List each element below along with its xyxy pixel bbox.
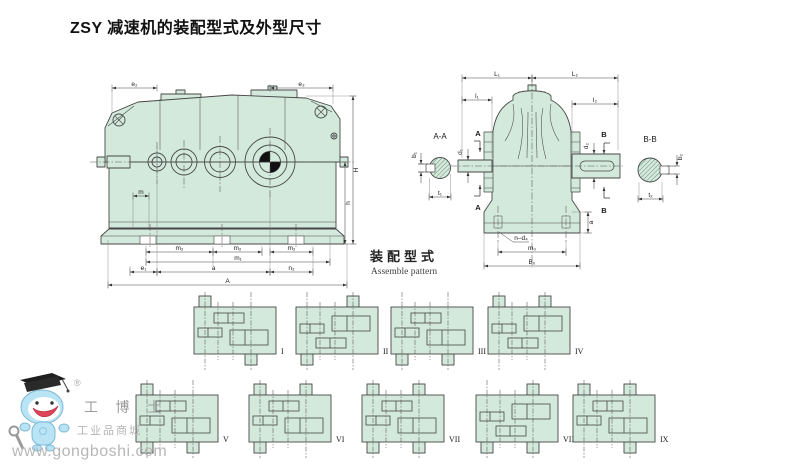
assemble-pattern-title-zh: 装配型式 <box>346 246 462 265</box>
dim-label: n₂ <box>288 265 295 272</box>
pattern-numeral: IX <box>660 435 669 444</box>
page: ZSY 减速机的装配型式及外型尺寸 <box>0 0 800 471</box>
dim-label: A <box>475 203 481 212</box>
dim-label: m₂ <box>288 245 296 252</box>
pattern-numeral: VI <box>336 435 345 444</box>
assembly-pattern-II: II <box>296 292 389 370</box>
pattern-numeral: V <box>223 435 229 444</box>
pattern-numeral: VII <box>449 435 460 444</box>
dim-label: L₂ <box>572 71 579 78</box>
section-aa: A-A <box>418 132 451 179</box>
dim-label: m₂ <box>176 245 184 252</box>
assembly-pattern-VIII: VIII <box>476 380 577 458</box>
dim-label: m₂ <box>234 245 242 252</box>
section-aa-label: A-A <box>433 132 447 141</box>
assembly-pattern-IX: IX <box>573 380 669 458</box>
pattern-numeral: IV <box>575 347 584 356</box>
assembly-pattern-VII: VII <box>362 380 460 458</box>
dim-label: H <box>353 167 360 172</box>
dim-label: B <box>601 130 607 139</box>
dim-label: a <box>212 265 216 272</box>
dim-label: m₀ <box>528 245 536 252</box>
side-view <box>90 86 354 248</box>
dim-label: a <box>588 220 595 224</box>
dim-label: h <box>345 201 352 205</box>
dim-label: l₂ <box>593 97 597 104</box>
assembly-pattern-III: III <box>391 292 486 370</box>
dim-label: e₃ <box>298 81 305 88</box>
dim-label: L₁ <box>494 71 501 78</box>
assemble-pattern-title-en: Assemble pattern <box>346 267 462 277</box>
dim-label: b₂ <box>677 153 684 160</box>
watermark-brand: 工 博 士 <box>84 397 168 417</box>
dim-label: B₀ <box>528 259 535 266</box>
assembly-pattern-I: I <box>194 292 284 370</box>
dim-label: d₁ <box>457 148 464 155</box>
pattern-numeral: II <box>383 347 389 356</box>
section-bb: B-B <box>638 135 676 182</box>
registered-mark: ® <box>74 378 81 388</box>
assembly-pattern-IV: IV <box>488 292 584 370</box>
dim-label: m <box>138 189 143 196</box>
pattern-numeral: III <box>478 347 486 356</box>
assembly-patterns: IIIIIIIVVVIVIIVIIIIX <box>136 292 669 458</box>
watermark-tagline: 工业品商城 <box>77 422 142 438</box>
dim-label: t₁ <box>438 190 443 197</box>
front-view <box>450 80 624 268</box>
assembly-pattern-VI: VI <box>249 380 345 458</box>
dim-label: B <box>601 206 607 215</box>
dim-label: e₁ <box>141 265 148 272</box>
watermark: ® 工 博 士 工业品商城 www.gongboshi.com <box>0 370 180 470</box>
dim-label: A <box>225 278 230 285</box>
dim-label: n–d₄ <box>514 235 528 242</box>
dim-label: t₂ <box>648 192 653 199</box>
dim-label: d₂ <box>583 142 590 149</box>
dim-label: e₂ <box>131 81 138 88</box>
dim-label: l₁ <box>475 93 479 100</box>
dim-label: m₁ <box>234 255 242 262</box>
assemble-pattern-heading: 装配型式 Assemble pattern <box>346 246 462 277</box>
watermark-url: www.gongboshi.com <box>12 443 167 461</box>
pattern-numeral: I <box>281 347 284 356</box>
dim-label: A <box>475 129 481 138</box>
section-bb-label: B-B <box>643 135 656 144</box>
dim-label: b₁ <box>411 151 418 158</box>
